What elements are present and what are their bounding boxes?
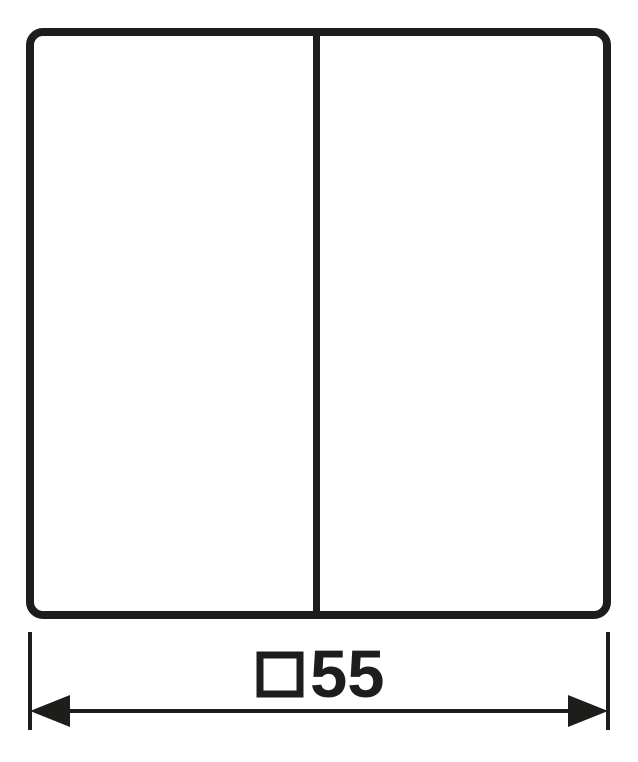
dimension-value-text: 55	[310, 637, 385, 712]
dimension-arrowhead-right	[568, 695, 608, 727]
dimension-drawing-canvas: 55	[0, 0, 638, 757]
dimension-arrowhead-left	[30, 695, 70, 727]
square-dimension-symbol	[260, 655, 300, 694]
dimension-drawing: 55	[0, 0, 638, 757]
